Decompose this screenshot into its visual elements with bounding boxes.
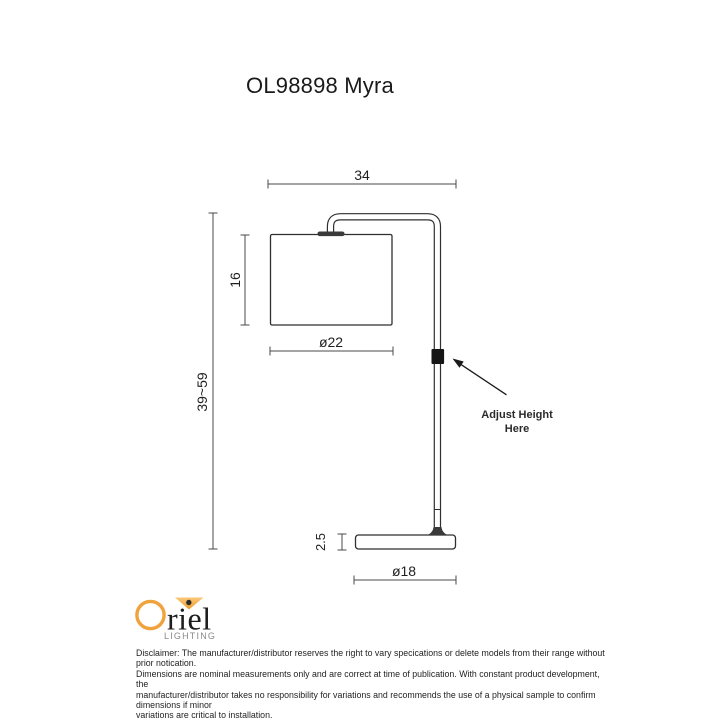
dim-label-base-height: 2.5 <box>313 533 328 551</box>
dim-label-base-diameter: ø18 <box>392 563 416 579</box>
logo-o-ring-icon <box>137 601 164 628</box>
adjust-height-label-line1: Adjust Height <box>481 409 553 421</box>
dim-base-height: 2.5 <box>313 533 347 551</box>
product-spec-sheet: OL98898 Myra <box>0 0 720 720</box>
dim-shade-height: 16 <box>227 235 250 325</box>
adjust-height-arrow-line <box>461 364 507 395</box>
dim-shade-diameter: ø22 <box>270 334 393 356</box>
lamp-drawing <box>271 217 456 549</box>
lamp-dimension-diagram: 34 16 ø22 39~59 2.5 <box>0 0 720 720</box>
dim-label-shade-height: 16 <box>227 272 243 288</box>
lamp-shade <box>271 235 393 326</box>
dim-overall-height: 39~59 <box>194 213 218 549</box>
dim-label-overall-width: 34 <box>354 167 370 183</box>
dim-overall-width: 34 <box>268 167 456 189</box>
dim-base-diameter: ø18 <box>354 563 456 585</box>
logo-subtitle: LIGHTING <box>164 631 216 641</box>
adjust-height-annotation: Adjust Height Here <box>453 359 554 436</box>
adjust-height-label-line2: Here <box>505 423 529 435</box>
disclaimer-text: Disclaimer: The manufacturer/distributor… <box>136 648 606 720</box>
dim-label-overall-height: 39~59 <box>194 372 210 412</box>
dim-label-shade-diameter: ø22 <box>319 334 343 350</box>
adjust-height-arrowhead-icon <box>453 359 464 368</box>
lamp-base <box>356 535 456 549</box>
height-adjuster-block <box>432 349 445 364</box>
shade-cap <box>318 232 345 237</box>
pole-foot <box>428 527 448 535</box>
